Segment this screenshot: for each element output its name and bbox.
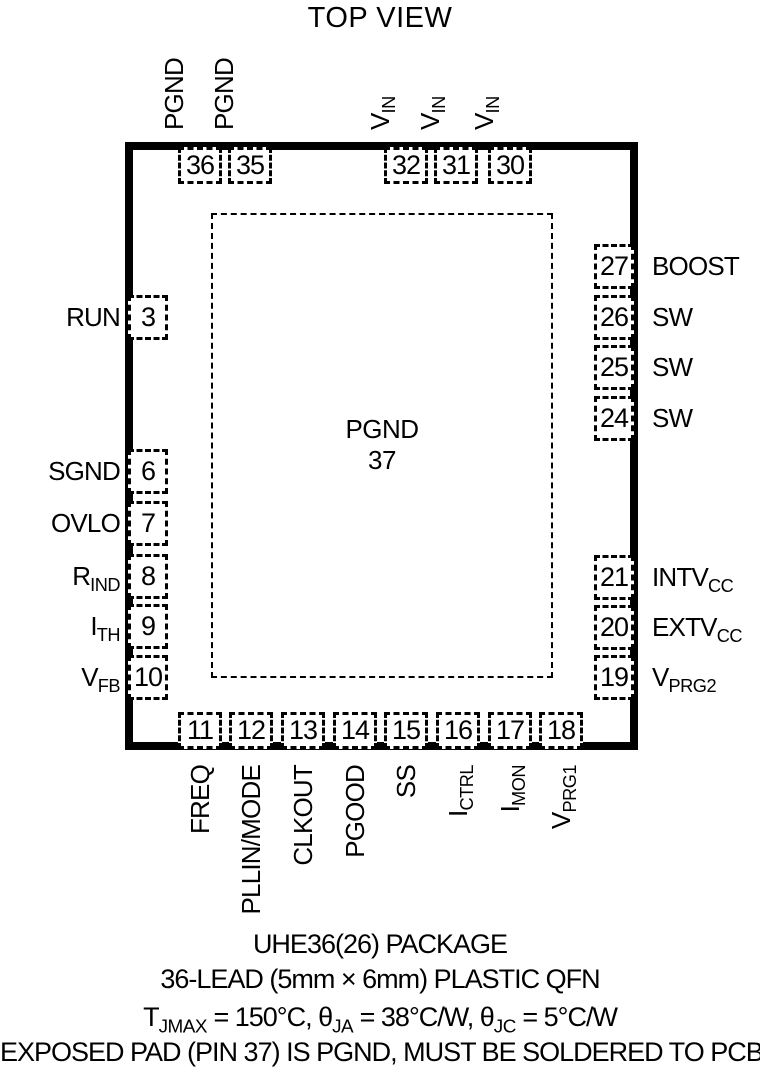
pin-number: 17 [496,715,524,746]
pin-number: 11 [187,715,213,746]
pin-number: 25 [600,352,628,383]
pin-box-left-3: 8 [128,554,168,599]
pin-box-left-1: 6 [128,449,168,494]
pin-number: 24 [600,403,628,434]
pin-number: 12 [237,715,265,746]
pin-box-left-5: 10 [128,655,168,700]
pin-label-right-3: SW [652,402,760,434]
pin-label-left-5: VFB [0,661,120,693]
pin-number: 6 [141,456,155,487]
pin-label-top-0: PGND [161,0,187,130]
footer-package-desc: 36-LEAD (5mm × 6mm) PLASTIC QFN [0,964,760,994]
pin-box-top-0: 36 [178,147,222,184]
pin-label-left-4: ITH [0,610,120,642]
pin-label-left-2: OVLO [0,507,120,539]
pin-label-bottom-1: PLLIN/MODE [238,765,264,985]
pin-box-top-3: 31 [434,147,478,184]
pin-label-right-1: SW [652,301,760,333]
pin-number: 18 [547,715,575,746]
pin-number: 20 [600,612,628,643]
footer-exposed-pad-note: EXPOSED PAD (PIN 37) IS PGND, MUST BE SO… [0,1037,760,1067]
pin-box-bottom-7: 18 [539,712,583,749]
pin-number: 26 [600,302,628,333]
pin-number: 8 [141,561,155,592]
pin-number: 35 [236,150,264,181]
exposed-pad-pin-number: 37 [211,445,553,476]
exposed-pad-label: PGND [211,414,553,445]
pin-box-right-4: 21 [594,555,634,600]
pin-label-top-3: VIN [417,0,443,130]
pin-box-bottom-1: 12 [229,712,273,749]
pin-label-bottom-0: FREQ [187,765,213,985]
pin-number: 10 [134,662,162,693]
pin-box-right-5: 20 [594,605,634,650]
pin-label-right-0: BOOST [652,250,760,282]
pin-label-top-1: PGND [211,0,237,130]
pin-label-top-4: VIN [471,0,497,130]
pin-box-left-4: 9 [128,604,168,649]
pin-number: 16 [444,715,472,746]
pin-label-right-2: SW [652,351,760,383]
pin-box-right-6: 19 [594,655,634,700]
pin-box-right-0: 27 [594,244,634,289]
pin-label-top-2: VIN [367,0,393,130]
footer-package-name: UHE36(26) PACKAGE [0,929,760,959]
pin-number: 14 [341,715,369,746]
pin-box-bottom-3: 14 [333,712,377,749]
pin-number: 3 [141,302,155,333]
exposed-pad-text: PGND 37 [211,414,553,476]
pin-label-bottom-4: SS [393,765,419,985]
pin-label-bottom-5: ICTRL [445,765,471,985]
pin-label-right-5: EXTVCC [652,611,760,643]
pin-label-bottom-6: IMON [497,765,523,985]
pin-label-left-3: RIND [0,560,120,592]
pin-number: 13 [289,715,317,746]
pin-box-bottom-6: 17 [488,712,532,749]
pin-box-bottom-5: 16 [436,712,480,749]
pin-label-left-0: RUN [0,301,120,333]
pin-number: 30 [496,150,524,181]
pin-label-bottom-2: CLKOUT [290,765,316,985]
pin-box-left-0: 3 [128,295,168,340]
pin-number: 19 [600,662,628,693]
pin-box-top-2: 32 [384,147,428,184]
pin-box-right-3: 24 [594,396,634,441]
pin-number: 31 [442,150,470,181]
pin-number: 32 [392,150,420,181]
pin-label-left-1: SGND [0,455,120,487]
pin-box-right-2: 25 [594,345,634,390]
pin-box-bottom-0: 11 [178,712,222,749]
pin-number: 21 [600,562,628,593]
pin-number: 15 [392,715,420,746]
pin-label-right-6: VPRG2 [652,661,760,693]
pin-box-top-4: 30 [488,147,532,184]
pin-box-top-1: 35 [228,147,272,184]
pin-box-left-2: 7 [128,501,168,546]
pin-label-right-4: INTVCC [652,561,760,593]
pin-box-bottom-4: 15 [384,712,428,749]
pin-box-right-1: 26 [594,295,634,340]
pin-number: 27 [600,251,628,282]
pin-number: 36 [186,150,214,181]
pin-label-bottom-7: VPRG1 [548,765,574,985]
pin-label-bottom-3: PGOOD [342,765,368,985]
pin-box-bottom-2: 13 [281,712,325,749]
pin-number: 9 [141,611,155,642]
pinout-diagram: TOP VIEW PGND 37 UHE36(26) PACKAGE 36-LE… [0,0,760,1074]
pin-number: 7 [141,508,155,539]
